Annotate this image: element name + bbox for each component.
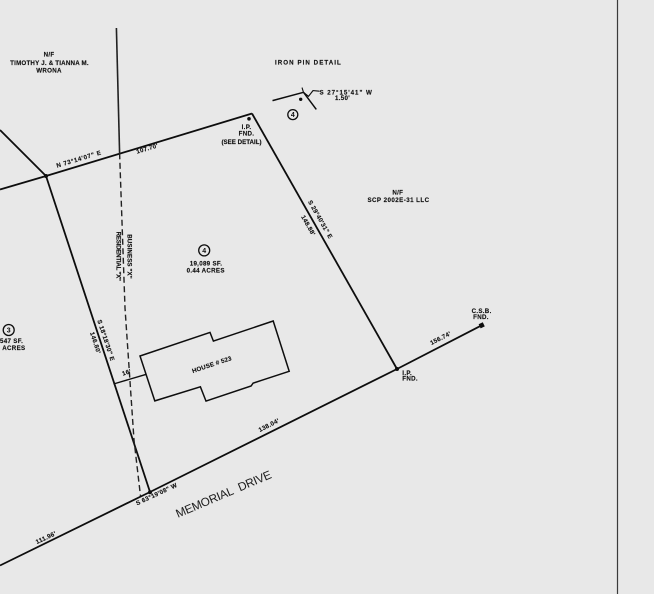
svg-text:N/F: N/F [392, 190, 403, 197]
svg-text:1.50': 1.50' [335, 95, 350, 102]
svg-text:FND.: FND. [473, 314, 489, 321]
svg-text:4: 4 [202, 248, 206, 255]
svg-text:N/F: N/F [44, 52, 55, 59]
svg-text:FND.: FND. [402, 375, 418, 382]
svg-text:(SEE DETAIL): (SEE DETAIL) [221, 139, 261, 146]
svg-text:RESIDENTIAL "X": RESIDENTIAL "X" [115, 232, 122, 281]
svg-text:,547 SF.: ,547 SF. [0, 338, 23, 345]
svg-text:WRONA: WRONA [36, 68, 62, 75]
svg-text:19,089 SF.: 19,089 SF. [190, 261, 223, 268]
svg-text:IRON PIN DETAIL: IRON PIN DETAIL [275, 60, 342, 67]
svg-text:BUSINESS "X": BUSINESS "X" [126, 234, 133, 279]
svg-text:4: 4 [291, 112, 295, 119]
svg-text:0.44 ACRES: 0.44 ACRES [187, 268, 225, 275]
svg-text:FND.: FND. [239, 131, 255, 138]
svg-text:TIMOTHY J. & TIANNA M.: TIMOTHY J. & TIANNA M. [10, 60, 89, 67]
svg-text:3: 3 [7, 328, 11, 335]
svg-text:SCP 2002E-31 LLC: SCP 2002E-31 LLC [367, 197, 429, 204]
svg-text:46 ACRES: 46 ACRES [0, 345, 25, 352]
